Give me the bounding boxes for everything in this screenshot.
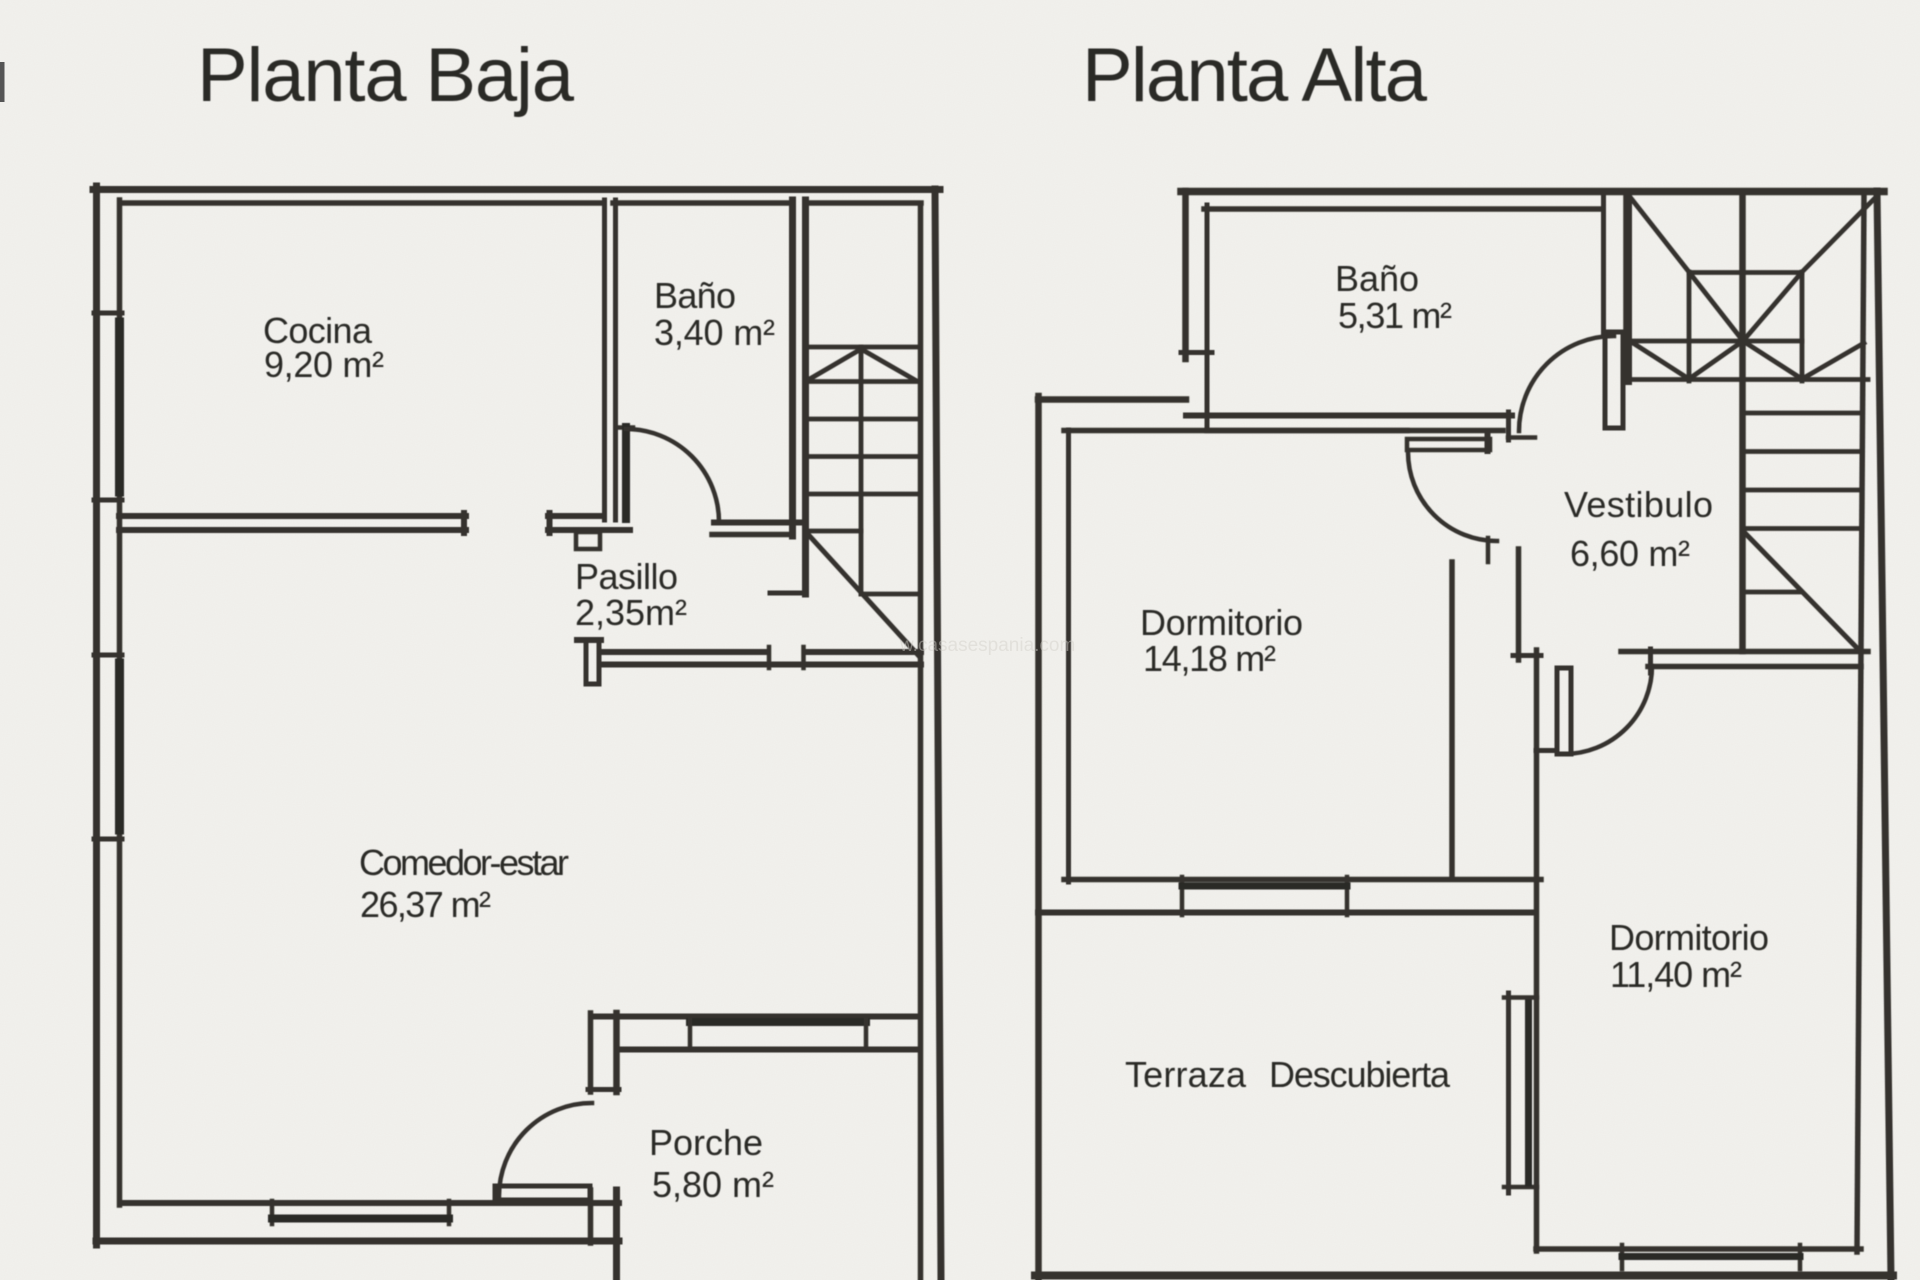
- svg-text:Planta Baja: Planta Baja: [197, 33, 575, 118]
- svg-text:Dormitorio: Dormitorio: [1609, 917, 1769, 958]
- svg-text:11,40 m²: 11,40 m²: [1610, 954, 1742, 995]
- svg-text:3,40 m²: 3,40 m²: [654, 312, 775, 353]
- svg-text:5,31 m²: 5,31 m²: [1338, 295, 1452, 336]
- svg-text:Vestibulo: Vestibulo: [1564, 484, 1713, 525]
- svg-text:Baño: Baño: [654, 275, 736, 316]
- svg-text:Baño: Baño: [1335, 258, 1419, 299]
- svg-text:Dormitorio: Dormitorio: [1140, 602, 1303, 643]
- svg-text:Planta Alta: Planta Alta: [1082, 33, 1428, 118]
- svg-text:26,37 m²: 26,37 m²: [360, 884, 491, 925]
- svg-text:Comedor-estar: Comedor-estar: [359, 842, 569, 883]
- svg-text:w.casasespania.com: w.casasespania.com: [899, 635, 1075, 656]
- svg-text:Porche: Porche: [649, 1122, 763, 1163]
- svg-text:14,18 m²: 14,18 m²: [1143, 638, 1276, 679]
- svg-text:Descubierta: Descubierta: [1269, 1054, 1451, 1095]
- svg-text:5,80 m²: 5,80 m²: [652, 1164, 774, 1205]
- svg-text:9,20 m²: 9,20 m²: [264, 344, 384, 385]
- svg-text:6,60 m²: 6,60 m²: [1570, 533, 1690, 574]
- svg-text:2,35m²: 2,35m²: [575, 592, 687, 633]
- svg-text:Terraza: Terraza: [1125, 1054, 1247, 1095]
- svg-text:Pasillo: Pasillo: [575, 556, 678, 597]
